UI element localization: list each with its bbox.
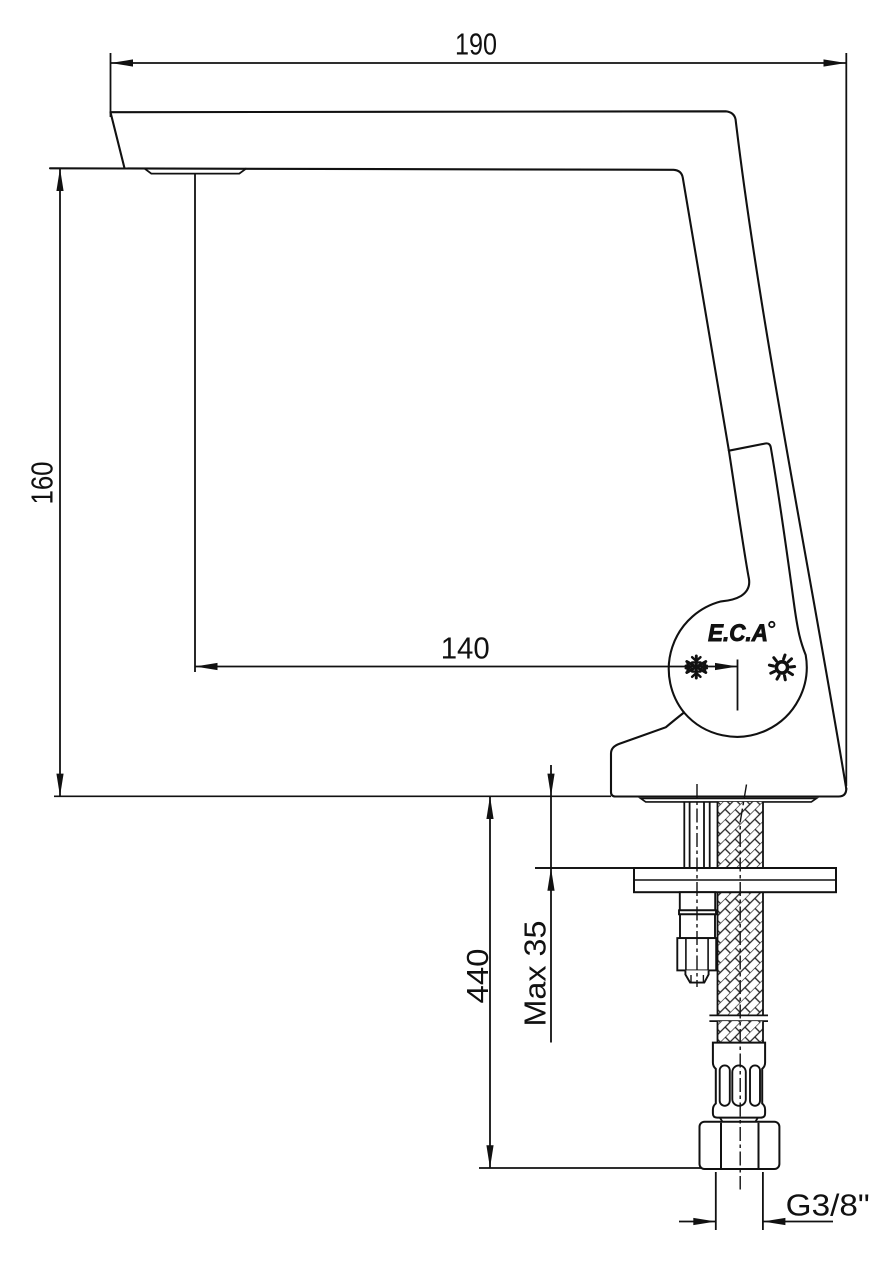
svg-text:Max 35: Max 35 bbox=[518, 921, 553, 1027]
svg-text:160: 160 bbox=[25, 462, 60, 505]
svg-text:E.C.A: E.C.A bbox=[708, 620, 768, 647]
svg-text:190: 190 bbox=[455, 27, 497, 62]
svg-text:140: 140 bbox=[441, 631, 490, 666]
svg-text:G3/8": G3/8" bbox=[786, 1187, 870, 1222]
svg-text:440: 440 bbox=[460, 949, 495, 1004]
